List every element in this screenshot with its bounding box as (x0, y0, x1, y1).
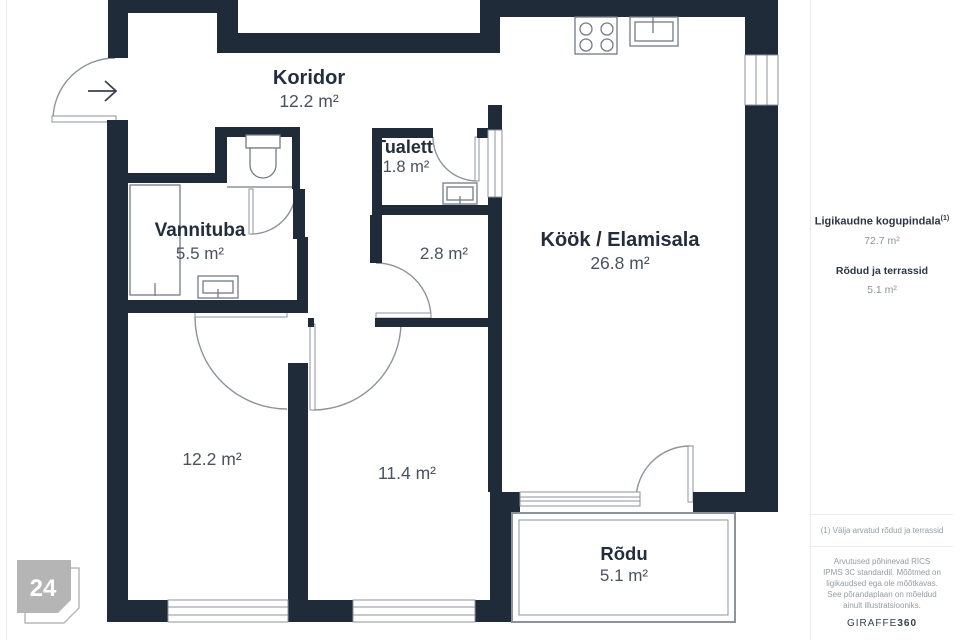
balcony-door-arc (636, 446, 690, 500)
room-area-kook-elamisala: 26.8 m² (590, 253, 649, 273)
room-area-tualett: 1.8 m² (383, 158, 430, 176)
brand-name: GIRAFFE (847, 618, 897, 629)
page-badge: 24 (17, 560, 79, 623)
hall-door-leaf (376, 313, 431, 318)
total-area-label: Ligikaudne kogupindala(1) (811, 215, 953, 228)
sidebar-footer: (1) Välja arvatud rõdud ja terrassid Arv… (811, 514, 953, 640)
bedroom2-door-leaf (310, 324, 315, 410)
window-interior-slot (488, 130, 502, 197)
room-label-tualett: Tualett (375, 137, 433, 157)
room-label-rodu: Rõdu (600, 543, 647, 564)
toilet-sink-icon (443, 183, 477, 204)
hall-door-arc (376, 263, 431, 318)
page-badge-number: 24 (30, 575, 57, 602)
room-area-magamistuba1: 12.2 m² (182, 449, 241, 469)
floor-plan: Koridor 12.2 m² Tualett 1.8 m² Vannituba… (0, 0, 810, 640)
footnote-text: (1) Välja arvatud rõdud ja terrassid (811, 514, 953, 547)
room-area-koridor: 12.2 m² (279, 91, 338, 111)
bedroom2-door-arc (313, 322, 401, 410)
room-area-vannituba: 5.5 m² (176, 244, 225, 263)
area-summary: Ligikaudne kogupindala(1) 72.7 m² Rõdud … (811, 215, 953, 296)
balcony-area-label: Rõdud ja terrassid (811, 265, 953, 277)
kitchen-sink-icon (630, 17, 678, 46)
bathroom-sink-icon (198, 276, 238, 298)
stove-icon (575, 17, 617, 54)
window-east-wall (745, 55, 778, 105)
entry-door-leaf (52, 116, 116, 122)
window-living-south (520, 492, 640, 506)
window-bottom-left (168, 600, 288, 622)
total-area-value: 72.7 m² (811, 235, 953, 247)
window-bottom-right (353, 600, 475, 622)
toilet-icon (246, 135, 280, 178)
entry-arrow-icon (88, 81, 116, 101)
walls (107, 0, 778, 622)
toilet-door-leaf (475, 137, 479, 181)
room-label-vannituba: Vannituba (155, 220, 246, 241)
bathroom-door-leaf (249, 189, 253, 234)
balcony-door-leaf (688, 446, 693, 502)
room-label-kook-elamisala: Köök / Elamisala (541, 229, 701, 251)
toilet-door-arc (433, 137, 477, 181)
bathroom-door-arc (251, 189, 296, 234)
total-area-label-text: Ligikaudne kogupindala (815, 216, 941, 228)
info-sidebar: Ligikaudne kogupindala(1) 72.7 m² Rõdud … (810, 0, 953, 640)
brand-number: 360 (897, 618, 917, 629)
room-area-magamistuba2: 11.4 m² (378, 463, 436, 483)
brand-logo: GIRAFFE360 (811, 613, 953, 640)
bedroom1-door-arc (195, 317, 287, 409)
room-area-hall: 2.8 m² (420, 244, 469, 263)
total-area-footnote-mark: (1) (941, 215, 950, 222)
disclaimer-text: Arvutused põhinevad RICS IPMS 3C standar… (811, 547, 953, 613)
entry-door-arc (53, 58, 115, 120)
balcony-area-value: 5.1 m² (811, 284, 953, 296)
room-area-rodu: 5.1 m² (600, 566, 649, 585)
room-label-koridor: Koridor (273, 67, 345, 89)
